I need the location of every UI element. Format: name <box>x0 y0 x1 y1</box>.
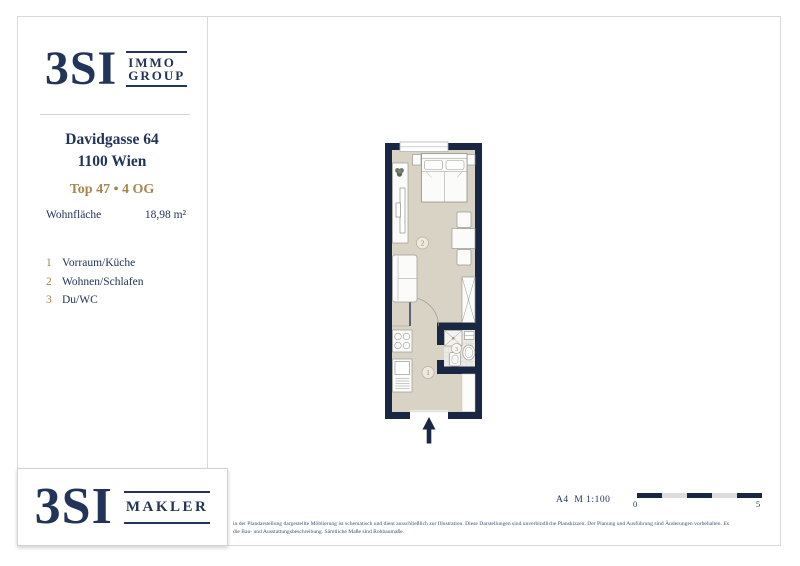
legend-number: 1 <box>46 257 62 269</box>
address-line2: 1100 Wien <box>18 153 206 171</box>
shower <box>445 331 463 347</box>
brand-logo-top: 3SI IMMO GROUP <box>40 38 192 100</box>
kitchen-sink <box>393 359 413 392</box>
room-badge-1: 1 <box>422 367 434 379</box>
room-number: 1 <box>426 369 430 377</box>
scale-bar-segment <box>662 493 687 498</box>
legend-label: Wohnen/Schlafen <box>62 276 143 288</box>
legend-label: Vorraum/Küche <box>62 257 135 269</box>
brand-logo-3si-text: 3SI <box>35 481 113 533</box>
room-badge-3: 3 <box>452 344 462 354</box>
scale-end-label: 5 <box>756 499 760 509</box>
disclaimer-text: in der Plandarstellung dargestellte Möbl… <box>233 520 778 536</box>
panel-divider-line <box>207 16 208 546</box>
scale-bar-segment <box>687 493 712 498</box>
toilet <box>450 353 461 367</box>
washbasin <box>463 345 475 360</box>
hand-basin <box>465 332 475 340</box>
legend-number: 2 <box>46 276 62 288</box>
legend-row-vorraum: 1 Vorraum/Küche <box>46 254 196 273</box>
legend-row-wohnen: 2 Wohnen/Schlafen <box>46 273 196 292</box>
niche-area <box>462 374 475 412</box>
bed <box>413 154 476 203</box>
brand-logo-makler: MAKLER <box>124 491 211 524</box>
area-value: 18,98 m² <box>145 209 186 221</box>
brand-logo-group-line: GROUP <box>128 69 185 82</box>
living-area-row: Wohnfläche 18,98 m² <box>46 209 186 221</box>
brand-logo-bottom: 3SI MAKLER <box>17 468 228 546</box>
window <box>400 142 448 152</box>
room-number: 3 <box>455 346 458 353</box>
scale-bar-segment <box>637 493 662 498</box>
brand-logo-3si-text: 3SI <box>45 45 117 93</box>
room-legend: 1 Vorraum/Küche 2 Wohnen/Schlafen 3 Du/W… <box>46 254 196 310</box>
disclaimer-line1: in der Plandarstellung dargestellte Möbl… <box>233 520 778 528</box>
disclaimer-line2: die Bau- und Ausstattungsbeschreibung. S… <box>233 528 778 536</box>
legend-row-duwc: 3 Du/WC <box>46 291 196 310</box>
entrance-arrow-icon <box>423 417 436 444</box>
wardrobe <box>462 277 475 323</box>
brand-logo-makler-line: MAKLER <box>126 499 209 516</box>
address-line1: Davidgasse 64 <box>18 131 206 149</box>
room-number: 2 <box>421 240 425 248</box>
legend-label: Du/WC <box>62 294 98 306</box>
unit-floor-label: Top 47 • 4 OG <box>18 182 206 198</box>
floor-plan-document: 3SI IMMO GROUP Davidgasse 64 1100 Wien T… <box>0 0 800 566</box>
legend-number: 3 <box>46 294 62 306</box>
format-scale-label: A4 M 1:100 <box>556 495 610 505</box>
sofa <box>393 255 418 302</box>
room-badge-2: 2 <box>417 237 429 249</box>
brand-logo-immogroup: IMMO GROUP <box>126 51 187 87</box>
logo-divider-line <box>40 114 190 115</box>
area-label: Wohnfläche <box>46 209 101 221</box>
scale-bar-segment <box>737 493 762 498</box>
floor-plan-drawing: 1 2 3 <box>378 138 494 454</box>
scale-bar <box>637 493 762 498</box>
scale-start-label: 0 <box>633 499 637 509</box>
kitchen-stove <box>393 330 413 352</box>
scale-bar-segment <box>712 493 737 498</box>
